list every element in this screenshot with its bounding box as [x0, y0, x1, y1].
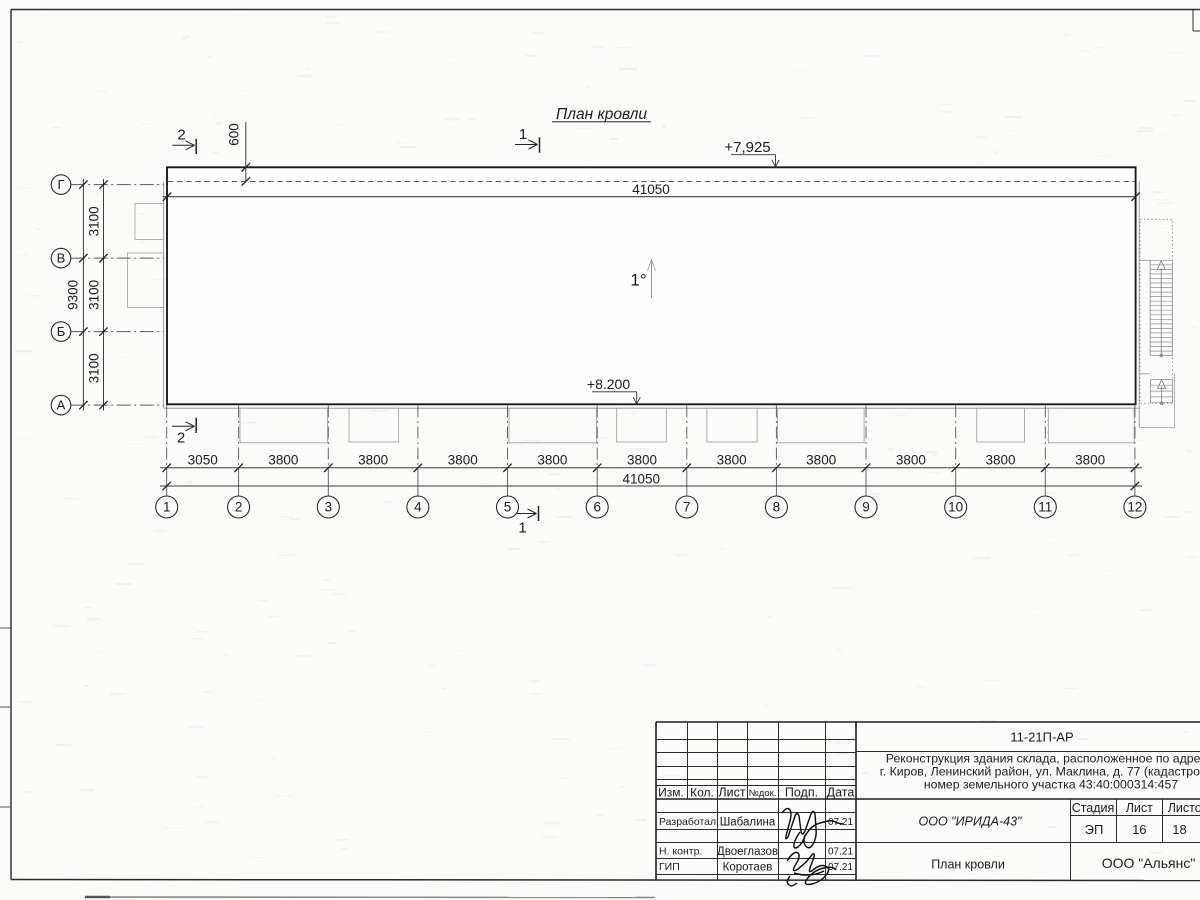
svg-text:9: 9: [862, 500, 870, 515]
svg-text:3800: 3800: [537, 452, 567, 467]
svg-text:Изм.: Изм.: [658, 785, 684, 799]
svg-text:3800: 3800: [268, 452, 298, 467]
svg-text:3800: 3800: [1075, 452, 1105, 467]
svg-text:Лист: Лист: [718, 785, 745, 799]
svg-text:7: 7: [683, 500, 691, 515]
svg-text:№док.: №док.: [749, 788, 777, 799]
svg-text:41050: 41050: [632, 182, 670, 197]
svg-text:Шабалина: Шабалина: [720, 816, 776, 828]
svg-text:2: 2: [235, 500, 243, 515]
svg-text:3100: 3100: [86, 280, 101, 310]
svg-text:8: 8: [773, 500, 781, 515]
svg-text:Кол.: Кол.: [690, 785, 714, 799]
svg-text:Лист: Лист: [1126, 801, 1153, 815]
svg-text:В: В: [57, 251, 66, 266]
svg-text:1°: 1°: [630, 271, 646, 290]
svg-text:Коротаев: Коротаев: [723, 861, 773, 873]
svg-text:11: 11: [1038, 500, 1052, 515]
svg-text:3100: 3100: [86, 206, 101, 236]
svg-text:План кровли: План кровли: [556, 106, 647, 123]
svg-text:Стадия: Стадия: [1072, 801, 1115, 815]
svg-text:9300: 9300: [66, 280, 81, 310]
svg-text:+7,925: +7,925: [724, 139, 770, 156]
svg-text:План кровли: План кровли: [931, 858, 1005, 872]
svg-text:3800: 3800: [717, 452, 747, 467]
svg-text:3800: 3800: [985, 452, 1015, 467]
svg-text:10: 10: [948, 500, 963, 515]
svg-text:3800: 3800: [627, 452, 657, 467]
svg-text:3050: 3050: [188, 452, 218, 467]
svg-text:Листов: Листов: [1168, 801, 1200, 815]
svg-text:Б: Б: [57, 324, 66, 339]
svg-text:Дата: Дата: [827, 785, 855, 799]
svg-text:Двоеглазов: Двоеглазов: [717, 846, 778, 858]
svg-text:Г: Г: [57, 177, 64, 192]
svg-text:12: 12: [1127, 500, 1142, 515]
svg-text:А: А: [57, 398, 66, 413]
svg-text:Реконструкция здания склада, р: Реконструкция здания склада, расположенн…: [886, 752, 1200, 766]
svg-text:18: 18: [1172, 822, 1186, 837]
svg-text:3800: 3800: [896, 452, 926, 467]
svg-text:07.21: 07.21: [828, 847, 853, 858]
svg-text:Разработал: Разработал: [659, 816, 716, 828]
svg-text:1: 1: [519, 126, 527, 143]
svg-text:11-21П-АР: 11-21П-АР: [1010, 729, 1073, 744]
svg-text:1: 1: [163, 500, 171, 515]
svg-text:3: 3: [325, 500, 333, 515]
svg-text:ГИП: ГИП: [659, 861, 680, 873]
svg-text:3800: 3800: [448, 452, 478, 467]
svg-text:5: 5: [504, 500, 512, 515]
svg-text:Н. контр.: Н. контр.: [659, 845, 702, 857]
svg-text:3800: 3800: [358, 452, 388, 467]
svg-text:1: 1: [518, 519, 526, 536]
svg-text:номер земельного участка 43:40: номер земельного участка 43:40:000314:45…: [924, 778, 1178, 792]
svg-text:4: 4: [414, 500, 422, 515]
svg-text:2: 2: [177, 127, 185, 144]
svg-text:16: 16: [1132, 822, 1146, 837]
svg-text:600: 600: [227, 123, 242, 146]
svg-text:07.21: 07.21: [828, 817, 853, 828]
svg-text:+8.200: +8.200: [587, 376, 630, 392]
svg-text:6: 6: [593, 500, 601, 515]
svg-text:Подп.: Подп.: [785, 785, 818, 799]
svg-text:ЭП: ЭП: [1085, 822, 1104, 837]
svg-text:3800: 3800: [806, 452, 836, 467]
svg-text:ООО "ИРИДА-43": ООО "ИРИДА-43": [919, 815, 1023, 829]
svg-text:3100: 3100: [86, 353, 101, 383]
svg-text:г. Киров, Ленинский район, ул.: г. Киров, Ленинский район, ул. Маклина, …: [880, 765, 1200, 779]
svg-text:2: 2: [177, 429, 185, 446]
svg-text:ООО "Альянс": ООО "Альянс": [1102, 855, 1196, 871]
svg-text:41050: 41050: [623, 471, 661, 486]
